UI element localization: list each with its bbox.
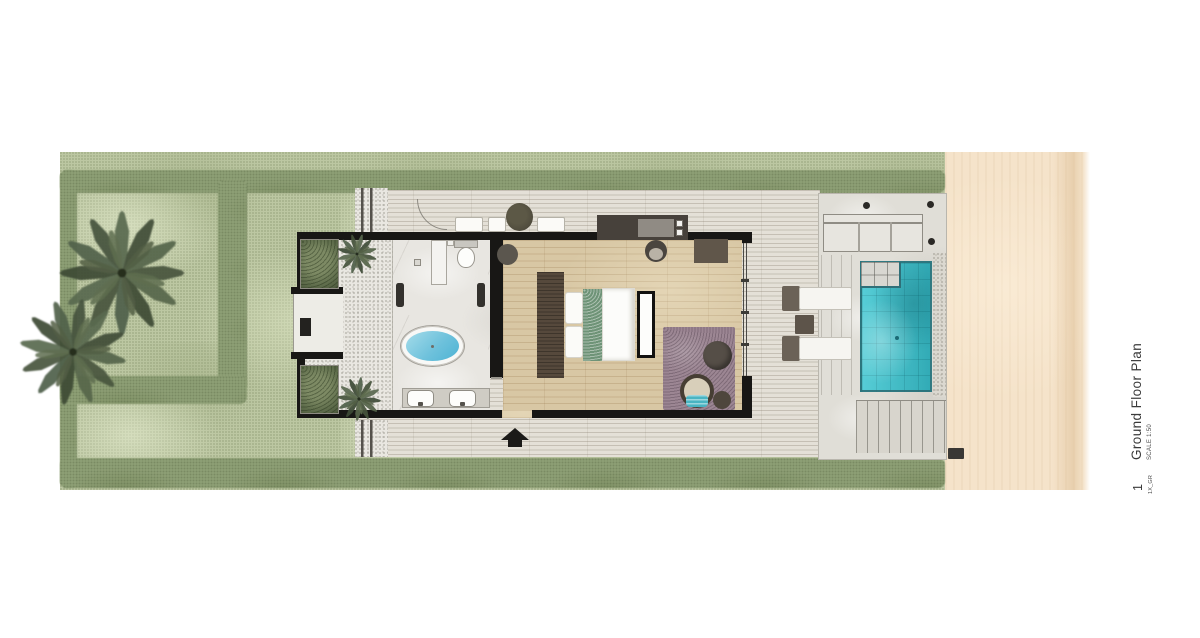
- terrace-plank-band: [821, 255, 860, 395]
- outdoor-daybed: [823, 214, 923, 252]
- sheet-code: 1X_GR: [1148, 475, 1154, 494]
- round-coffee-table: [703, 341, 732, 370]
- door-track-tick: [741, 279, 749, 282]
- partition-door-leaf: [396, 283, 404, 307]
- floor-plan-canvas: Ground Floor Plan SCALE 1:50 1 1X_GR: [0, 0, 1200, 638]
- bed-pillow: [565, 326, 583, 358]
- drawing-title: Ground Floor Plan: [1129, 343, 1144, 460]
- hedge-bottom: [60, 458, 945, 488]
- sun-lounger-head: [782, 336, 800, 361]
- bed-duvet: [602, 288, 635, 361]
- headboard-console: [537, 272, 564, 378]
- bed-pillow: [565, 292, 583, 324]
- pergola-post: [928, 238, 935, 245]
- floor-seam: [392, 240, 393, 410]
- entry-arrow-icon: [501, 428, 529, 447]
- sink-faucet: [460, 402, 465, 406]
- minibar-sink: [676, 220, 683, 227]
- sun-lounger: [799, 287, 852, 310]
- pergola-post: [927, 201, 934, 208]
- sink-faucet: [418, 402, 423, 406]
- niche-door: [300, 318, 311, 336]
- outdoor-cushion: [537, 217, 565, 232]
- side-cabinet: [694, 239, 728, 263]
- minibar-inset: [638, 219, 674, 237]
- sun-lounger: [799, 337, 852, 360]
- bath-door-threshold: [491, 377, 502, 379]
- wall-corner-ne: [742, 232, 752, 243]
- bathtub-faucet: [431, 345, 434, 348]
- deck-pad-top-rails: [361, 188, 375, 235]
- pool-steps: [861, 262, 901, 288]
- outdoor-cushion: [488, 217, 506, 232]
- wall-corner-se: [742, 376, 752, 418]
- potted-plant: [506, 203, 533, 231]
- pergola-post: [863, 202, 870, 209]
- palm-tree-icon: [336, 376, 382, 422]
- beach-steps: [856, 400, 946, 453]
- daybed-divider: [890, 222, 892, 252]
- drawing-scale: SCALE 1:50: [1147, 424, 1153, 460]
- bed-runner: [583, 289, 602, 361]
- shower-partition: [431, 240, 447, 285]
- wall-south-east: [532, 410, 752, 418]
- daybed-divider: [858, 222, 860, 252]
- entry-threshold: [502, 410, 532, 418]
- partition-door-leaf: [477, 283, 485, 307]
- papasan-cushion: [686, 395, 708, 407]
- palm-tree-icon: [336, 233, 378, 275]
- flush-plate: [447, 240, 454, 246]
- sliding-glass-door: [743, 243, 747, 376]
- planter-south: [300, 365, 339, 414]
- minibar-sink: [676, 229, 683, 236]
- outdoor-shower-mat: [948, 448, 964, 459]
- round-side-table: [497, 244, 518, 265]
- pebble-border: [933, 253, 946, 397]
- niche-wall-bottom: [291, 352, 343, 359]
- outdoor-cushion: [455, 217, 483, 232]
- hedge-inner-vertical: [218, 180, 247, 392]
- sheet-number: 1: [1131, 484, 1145, 491]
- shoreline-band: [1052, 152, 1090, 490]
- shower-drain: [414, 259, 421, 266]
- door-track-tick: [741, 311, 749, 314]
- toilet: [457, 247, 475, 268]
- bed-foot-bench: [637, 291, 655, 358]
- daybed-back-line: [823, 222, 923, 224]
- dressing-stool-seat: [649, 248, 663, 260]
- planter-north: [300, 239, 339, 289]
- floor-pouf: [713, 391, 731, 409]
- pool-drain: [895, 336, 899, 340]
- deck-pad-bottom-rails: [361, 420, 375, 457]
- sun-lounger-head: [782, 286, 800, 311]
- door-track-tick: [741, 343, 749, 346]
- palm-tree-icon: [17, 296, 129, 408]
- lounger-side-table: [795, 315, 814, 334]
